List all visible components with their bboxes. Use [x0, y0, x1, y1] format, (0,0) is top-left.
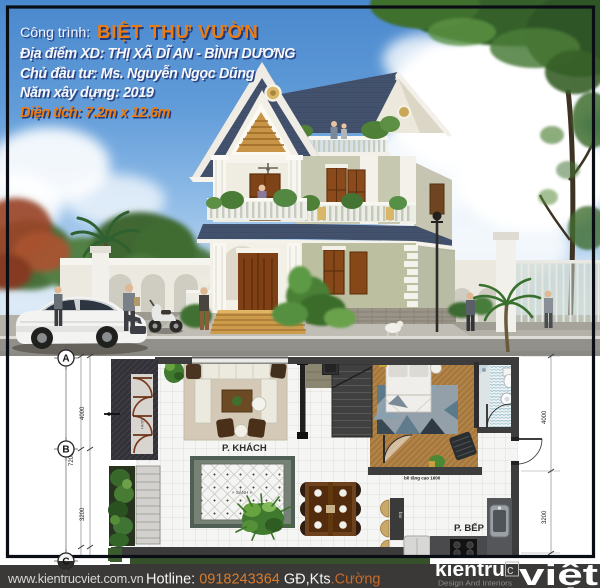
svg-text:Địa điểm XD: THỊ XÃ DĨ AN - BÌ: Địa điểm XD: THỊ XÃ DĨ AN - BÌNH DƯƠNG [20, 44, 295, 62]
svg-text:bar: bar [398, 512, 403, 519]
svg-text:Công trình:: Công trình: [20, 25, 90, 41]
svg-text:bề tầng cao 1600: bề tầng cao 1600 [404, 476, 441, 481]
svg-text:Chủ đầu tư: Ms. Nguyễn Ngọc Dũ: Chủ đầu tư: Ms. Nguyễn Ngọc Dũng [20, 65, 255, 82]
svg-text:B: B [62, 445, 69, 456]
svg-text:Hotline: 0918243364 GĐ,Kts.Cườ: Hotline: 0918243364 GĐ,Kts.Cường [146, 572, 380, 588]
svg-text:kientru: kientru [435, 559, 505, 581]
svg-text:BIỆT THỰ VƯỜN: BIỆT THỰ VƯỜN [97, 21, 259, 42]
svg-text:3200: 3200 [80, 507, 86, 521]
svg-text:3200: 3200 [542, 510, 548, 524]
svg-text:C: C [62, 557, 69, 568]
svg-text:4000: 4000 [80, 406, 86, 420]
svg-text:P. BẾP: P. BẾP [454, 523, 485, 534]
svg-text:việt: việt [519, 557, 598, 588]
svg-text:Diện tích: 7.2m x 12.6m: Diện tích: 7.2m x 12.6m [20, 105, 171, 121]
svg-text:c: c [507, 562, 514, 577]
svg-text:Design And Interiors: Design And Interiors [438, 581, 513, 588]
svg-text:4000: 4000 [542, 410, 548, 424]
svg-text:www.kientrucviet.com.vn: www.kientrucviet.com.vn [7, 571, 144, 586]
svg-text:P. KHÁCH: P. KHÁCH [222, 443, 267, 454]
svg-text:Năm xây dựng: 2019: Năm xây dựng: 2019 [20, 85, 154, 101]
svg-text:× SẢNH ×: × SẢNH × [232, 489, 253, 495]
svg-text:SẢNH: SẢNH [140, 418, 145, 429]
svg-text:A: A [62, 354, 69, 365]
